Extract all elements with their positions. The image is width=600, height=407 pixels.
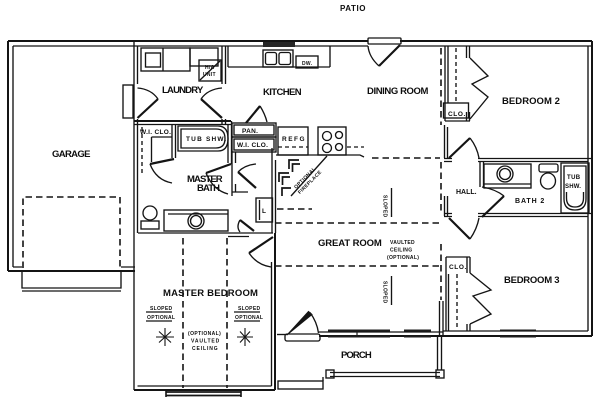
svg-text:(OPTIONAL): (OPTIONAL) bbox=[188, 331, 221, 337]
svg-text:CEILING: CEILING bbox=[192, 346, 219, 352]
svg-text:PAN.: PAN. bbox=[242, 128, 258, 135]
svg-text:L: L bbox=[262, 208, 266, 215]
svg-text:DINING ROOM: DINING ROOM bbox=[367, 86, 429, 97]
svg-text:BATH 2: BATH 2 bbox=[515, 198, 545, 205]
svg-text:SLOPED: SLOPED bbox=[238, 306, 260, 312]
svg-text:SHW.: SHW. bbox=[565, 184, 581, 190]
svg-text:CLO.: CLO. bbox=[449, 264, 467, 271]
svg-text:HALL.: HALL. bbox=[456, 189, 477, 196]
svg-text:DW.: DW. bbox=[302, 61, 313, 67]
svg-text:TUB: TUB bbox=[567, 175, 581, 181]
svg-text:TUB SHW.: TUB SHW. bbox=[186, 136, 227, 143]
svg-text:UNIT: UNIT bbox=[203, 72, 216, 78]
svg-text:BEDROOM 2: BEDROOM 2 bbox=[502, 96, 560, 107]
svg-text:OPTIONAL: OPTIONAL bbox=[147, 315, 175, 321]
svg-text:PATIO: PATIO bbox=[340, 4, 366, 13]
svg-text:PORCH: PORCH bbox=[341, 350, 372, 361]
svg-text:KITCHEN: KITCHEN bbox=[263, 87, 302, 98]
svg-text:OPTIONAL: OPTIONAL bbox=[235, 315, 263, 321]
svg-text:LAUNDRY: LAUNDRY bbox=[162, 85, 204, 96]
svg-text:VAULTED: VAULTED bbox=[390, 240, 415, 246]
svg-text:SLOPED: SLOPED bbox=[382, 281, 388, 303]
svg-text:REFG: REFG bbox=[282, 136, 306, 143]
svg-text:GREAT ROOM: GREAT ROOM bbox=[318, 238, 382, 249]
svg-text:VAULTED: VAULTED bbox=[191, 339, 220, 345]
svg-text:SLOPED: SLOPED bbox=[382, 195, 388, 217]
svg-text:CEILING: CEILING bbox=[390, 248, 412, 254]
svg-text:GARAGE: GARAGE bbox=[52, 149, 90, 160]
svg-text:CLO.: CLO. bbox=[448, 111, 466, 118]
svg-text:W.I. CLO.: W.I. CLO. bbox=[140, 129, 171, 136]
svg-text:BEDROOM 3: BEDROOM 3 bbox=[504, 275, 559, 286]
svg-text:W.I. CLO.: W.I. CLO. bbox=[237, 142, 268, 149]
svg-text:H/A: H/A bbox=[205, 65, 215, 71]
svg-text:MASTER BEDROOM: MASTER BEDROOM bbox=[163, 288, 258, 299]
svg-text:SLOPED: SLOPED bbox=[150, 306, 172, 312]
svg-text:(OPTIONAL): (OPTIONAL) bbox=[387, 255, 419, 261]
